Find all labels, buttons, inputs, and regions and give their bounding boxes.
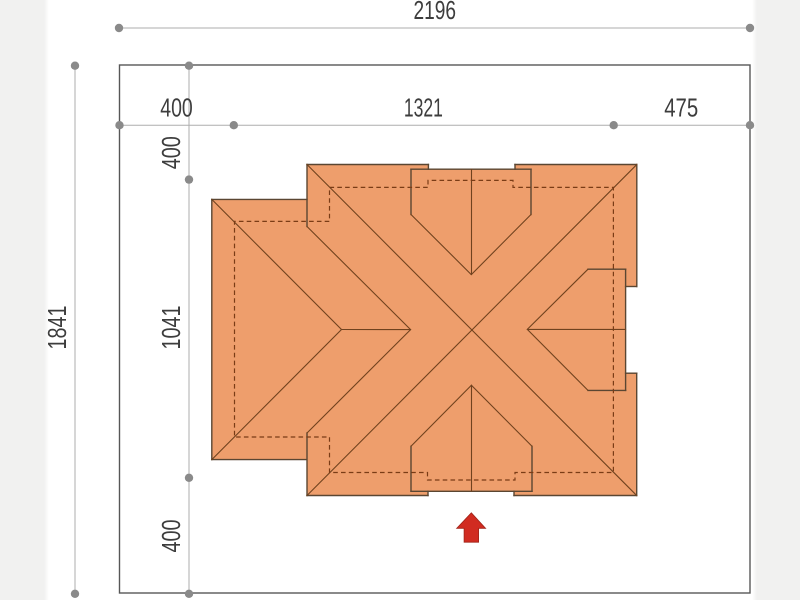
svg-text:1321: 1321 bbox=[404, 93, 443, 123]
svg-text:1041: 1041 bbox=[156, 306, 186, 350]
svg-text:400: 400 bbox=[156, 520, 186, 553]
svg-text:400: 400 bbox=[156, 136, 186, 169]
svg-text:1841: 1841 bbox=[42, 306, 72, 350]
svg-text:400: 400 bbox=[160, 93, 193, 123]
svg-text:475: 475 bbox=[664, 93, 698, 123]
svg-text:2196: 2196 bbox=[414, 0, 457, 25]
